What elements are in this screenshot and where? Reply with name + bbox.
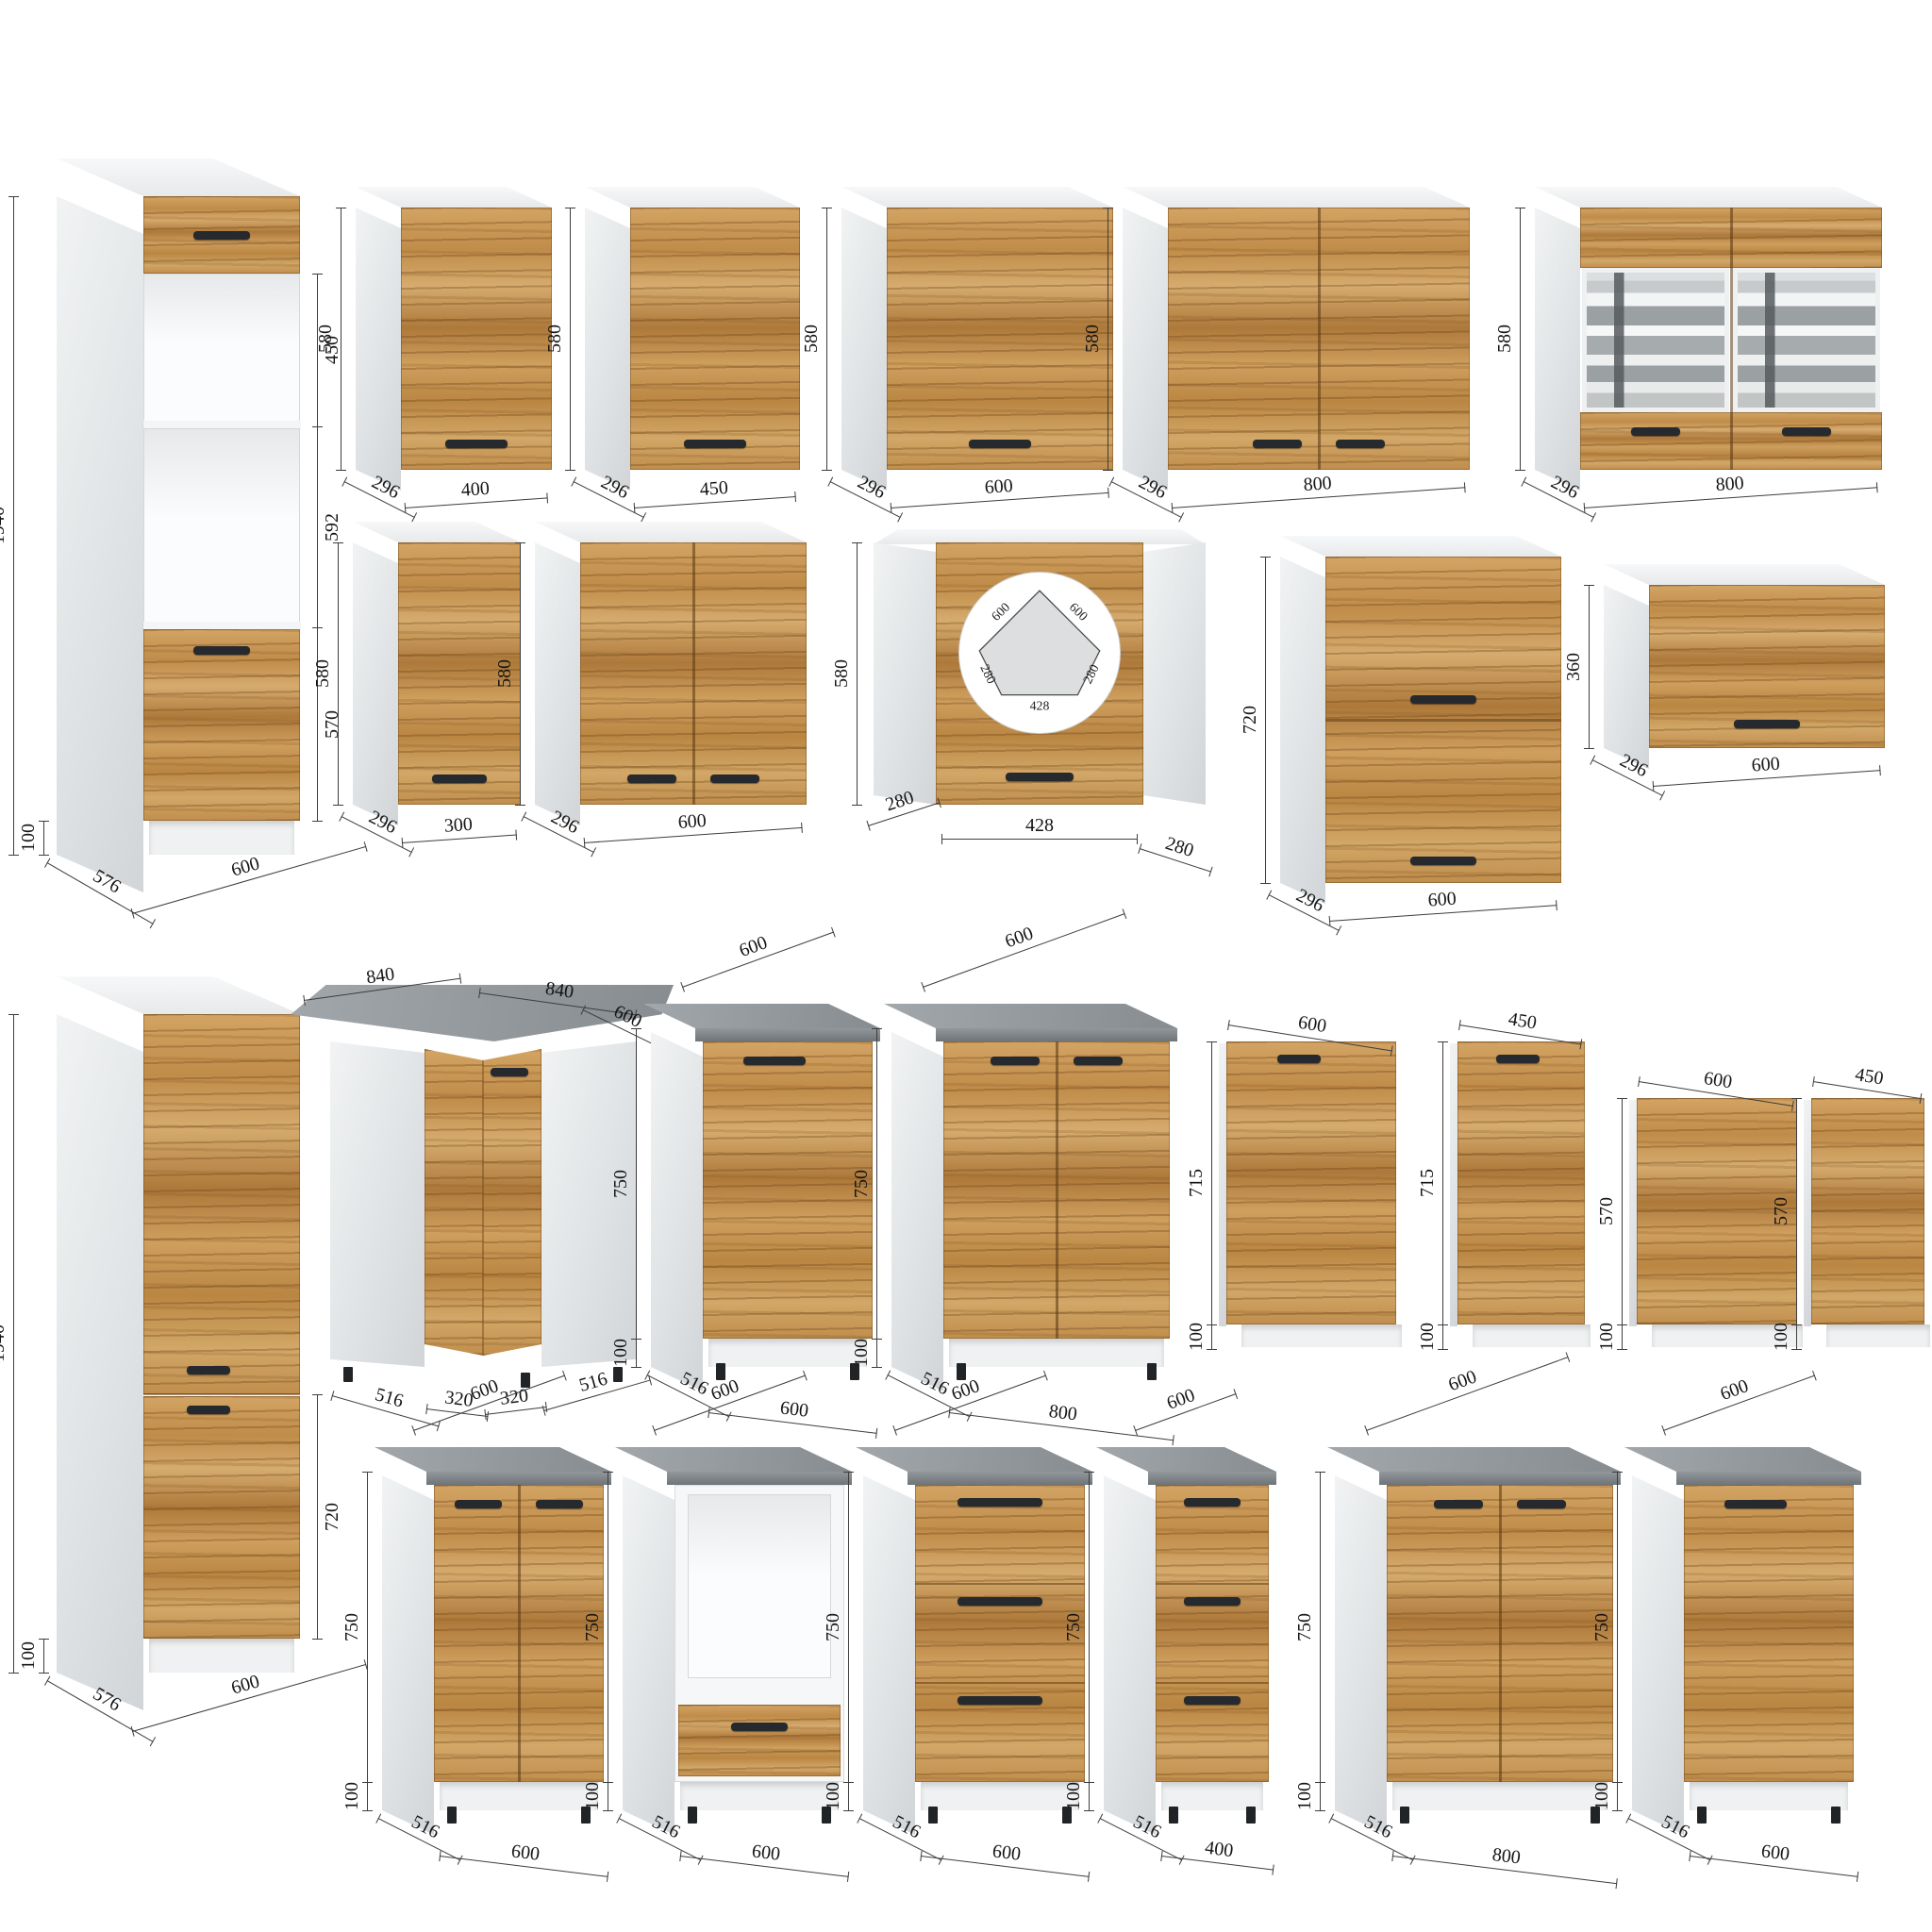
door-split: [1730, 208, 1733, 470]
cabinet-top-panel: [1123, 187, 1470, 208]
dimension: 400: [405, 497, 548, 508]
dimension-tick: [652, 1425, 657, 1436]
cabinet-foot: [1831, 1807, 1840, 1824]
dimension-line: [857, 542, 858, 805]
dimension-tick: [847, 1872, 849, 1882]
dimension-tick: [631, 1028, 641, 1029]
dimension-label: 400: [1204, 1839, 1234, 1861]
dimension: 600: [413, 1375, 565, 1430]
dimension-tick: [1584, 748, 1594, 749]
dimension-label: 580: [313, 659, 332, 688]
cabinet-side-panel: [1535, 208, 1580, 491]
door-handle: [1184, 1597, 1241, 1606]
dimension-label: 516: [1361, 1812, 1395, 1841]
plinth: [680, 1782, 839, 1810]
cabinet-side-panel: [1143, 542, 1206, 805]
dimension-label: 450: [699, 478, 728, 499]
dimension-tick: [603, 1782, 613, 1783]
dimension: 516: [859, 1818, 941, 1859]
dimension-line: [13, 196, 14, 855]
door-handle: [731, 1723, 788, 1731]
dimension-label: 800: [1048, 1402, 1078, 1424]
flap-split: [1325, 719, 1561, 722]
appliance-front-panel: [1457, 1041, 1585, 1324]
countertop-edge: [695, 1028, 880, 1041]
dimension-label: 450: [1854, 1065, 1885, 1088]
dimension: 600: [1690, 1856, 1858, 1876]
dimension-tick: [1207, 1349, 1217, 1350]
countertop-top: [1327, 1447, 1621, 1472]
dimension-label: 100: [342, 1782, 361, 1810]
dimension: 600: [1653, 770, 1880, 786]
dimension-tick: [333, 805, 343, 806]
dimension: 600: [440, 1856, 608, 1876]
plinth: [149, 1639, 294, 1673]
dimension-line: [1320, 1472, 1321, 1782]
dimension-label: 600: [1760, 1841, 1790, 1864]
dimension-line: [1520, 208, 1521, 470]
door-handle: [958, 1597, 1042, 1606]
cabinet-top-panel: [841, 187, 1113, 208]
dimension-line: [1089, 1472, 1090, 1782]
dimension-tick: [794, 491, 796, 502]
cabinet-top-panel: [57, 158, 300, 196]
dimension-line: [1442, 1324, 1443, 1349]
door-split: [143, 1393, 300, 1395]
dimension-tick: [515, 805, 525, 806]
dimension: 450: [634, 496, 796, 508]
door-handle: [536, 1500, 583, 1508]
dimension-label: 100: [1064, 1782, 1083, 1810]
dimension-tick: [1615, 1878, 1617, 1889]
cabinet-side-panel: [1335, 1475, 1387, 1835]
dimension-label: 580: [1495, 325, 1514, 353]
appliance-front-panel: [1226, 1041, 1396, 1324]
cabinet-side-panel: [1629, 1100, 1637, 1326]
dimension: 600: [891, 492, 1108, 508]
cabinet-front: [1684, 1485, 1854, 1782]
dimension-tick: [362, 1472, 373, 1473]
dimension: 600: [682, 932, 834, 987]
door-handle: [958, 1696, 1042, 1705]
dimension-line: [43, 1639, 44, 1673]
dimension-tick: [1612, 1782, 1623, 1783]
dimension: 280: [1140, 848, 1211, 872]
plinth: [921, 1782, 1079, 1810]
door-split: [518, 1485, 521, 1782]
dimension-label: 100: [19, 1641, 38, 1670]
dimension-tick: [941, 834, 942, 844]
dimension-tick: [1108, 488, 1109, 498]
cabinet-foot: [613, 1367, 623, 1382]
dimension-tick: [312, 1639, 323, 1640]
open-niche: [143, 428, 300, 627]
svg-text:600: 600: [989, 599, 1012, 623]
dimension-label: 516: [373, 1385, 405, 1410]
dimension-tick: [39, 855, 49, 856]
glass-door: [1582, 268, 1729, 412]
dimension-label: 570: [323, 710, 341, 739]
dimension-line: [1617, 1782, 1618, 1810]
dimension-line: [608, 1472, 608, 1782]
dimension: 600: [1366, 1357, 1568, 1430]
cabinet-side-panel: [57, 196, 143, 892]
cabinet-top-panel: [57, 976, 300, 1014]
oven-niche: [688, 1494, 831, 1678]
dimension-line: [1211, 1324, 1212, 1349]
dimension-label: 100: [1772, 1323, 1790, 1351]
cabinet-door: [143, 1014, 300, 1394]
cabinet-foot: [1400, 1807, 1409, 1824]
dimension-line: [367, 1472, 368, 1782]
cabinet-side-panel: [330, 1041, 425, 1367]
dimension-line: [1442, 1041, 1443, 1324]
dimension-label: 100: [1597, 1323, 1616, 1351]
dimension-tick: [1438, 1324, 1448, 1325]
dimension: 600: [1329, 905, 1557, 921]
dimension-tick: [843, 1810, 854, 1811]
dimension-tick: [875, 1428, 877, 1439]
dimension-tick: [1617, 1324, 1627, 1325]
dimension: 600: [1663, 1375, 1815, 1430]
dimension-label: 516: [918, 1369, 952, 1398]
dimension-tick: [1791, 1349, 1802, 1350]
dimension-label: 720: [1241, 706, 1259, 734]
drawer-split: [915, 1682, 1085, 1684]
cabinet-foot: [1147, 1363, 1157, 1380]
countertop-top: [375, 1447, 611, 1472]
dimension-tick: [364, 841, 368, 852]
door-handle: [991, 1057, 1040, 1065]
dimension: 280: [868, 802, 940, 825]
cabinet-top-panel: [1535, 187, 1882, 208]
dimension-tick: [801, 823, 803, 833]
dimension-label: 100: [583, 1782, 602, 1810]
cabinet-foot: [447, 1807, 457, 1824]
dimension-tick: [150, 919, 156, 928]
cabinet-side-panel: [1219, 1043, 1226, 1326]
dimension-label: 400: [460, 479, 490, 500]
dimension-label: 100: [611, 1339, 630, 1367]
dimension: 600: [708, 1412, 877, 1433]
cabinet-foot: [716, 1363, 725, 1380]
dimension-line: [848, 1782, 849, 1810]
dimension-tick: [1612, 1810, 1623, 1811]
dimension-tick: [39, 821, 49, 822]
dimension-tick: [515, 830, 517, 841]
dimension-tick: [565, 208, 575, 208]
dimension-label: 600: [229, 1672, 261, 1697]
cabinet-side-panel: [1104, 1475, 1156, 1835]
cabinet-side-panel: [874, 542, 936, 805]
dimension-tick: [872, 1028, 882, 1029]
dimension: 516: [1628, 1818, 1710, 1859]
dimension-tick: [1364, 1425, 1369, 1436]
cabinet-top-panel: [356, 187, 552, 208]
dimension-tick: [39, 1639, 49, 1640]
dimension-tick: [1133, 1425, 1138, 1436]
dimension-line: [1320, 1782, 1321, 1810]
dimension-tick: [680, 982, 685, 992]
door-handle: [1631, 427, 1680, 436]
dimension-tick: [843, 1472, 854, 1473]
dimension-tick: [8, 855, 19, 856]
dimension-label: 750: [342, 1613, 361, 1641]
dimension-tick: [1315, 1810, 1325, 1811]
cabinet-foot: [1246, 1807, 1256, 1824]
dimension: 800: [1392, 1856, 1617, 1883]
door-handle: [958, 1498, 1042, 1507]
dimension-label: 100: [1418, 1323, 1437, 1351]
dimension-label: 800: [1715, 474, 1744, 494]
dimension-line: [1265, 557, 1266, 883]
dimension-tick: [1661, 1425, 1666, 1436]
dimension-label: 750: [1295, 1613, 1314, 1641]
dimension-tick: [1178, 512, 1184, 522]
dimension-label: 580: [316, 325, 335, 353]
corner-plan-diagram: 600600280280428: [959, 573, 1120, 733]
door-handle: [491, 1068, 528, 1076]
dimension: 600: [1135, 1393, 1236, 1430]
plinth: [1826, 1324, 1930, 1347]
cabinet-foot: [688, 1807, 697, 1824]
corner-door: [483, 1049, 541, 1356]
door-handle: [1006, 773, 1074, 781]
dimension-tick: [603, 1810, 613, 1811]
dimension-tick: [641, 512, 646, 522]
door-handle: [193, 231, 250, 240]
door-split: [1318, 208, 1321, 470]
dimension-line: [1589, 585, 1590, 748]
dimension-label: 516: [577, 1370, 609, 1395]
dimension-tick: [1617, 1349, 1627, 1350]
door-split: [1056, 1041, 1058, 1339]
dimension-label: 1940: [0, 507, 8, 544]
door-handle: [1410, 695, 1476, 704]
cabinet-front: [887, 208, 1113, 470]
dimension-line: [608, 1782, 608, 1810]
dimension-tick: [1791, 1098, 1802, 1099]
dimension: 516: [1331, 1818, 1413, 1859]
drawer-front-stack: [915, 1485, 1085, 1782]
dimension-tick: [1208, 867, 1212, 877]
dimension-label: 580: [1083, 325, 1102, 353]
dimension-label: 720: [323, 1503, 341, 1531]
dimension-label: 600: [677, 811, 707, 832]
dimension: 516: [378, 1818, 460, 1859]
cabinet-side-panel: [57, 1014, 143, 1710]
plinth: [1392, 1782, 1607, 1810]
countertop-top: [884, 1004, 1177, 1028]
dimension-label: 600: [779, 1398, 809, 1421]
dimension-label: 750: [1064, 1613, 1083, 1641]
shelf: [143, 421, 300, 428]
dimension: 516: [619, 1818, 701, 1859]
dimension-tick: [411, 1425, 416, 1436]
dimension-tick: [150, 1737, 156, 1746]
cabinet-side-panel: [1280, 557, 1325, 904]
dimension-label: 516: [890, 1812, 924, 1841]
dimension-tick: [1438, 1349, 1448, 1350]
cabinet-side-panel: [382, 1475, 434, 1835]
countertop-top: [1624, 1447, 1861, 1472]
cabinet-front: [630, 208, 800, 470]
cabinet-foot: [1697, 1807, 1707, 1824]
oven-drawer: [678, 1705, 841, 1776]
dimension-line: [520, 542, 521, 805]
dimension: 300: [402, 834, 517, 842]
dimension-tick: [1172, 1435, 1174, 1445]
dimension-label: 516: [1130, 1812, 1164, 1841]
dimension-label: 600: [1427, 890, 1457, 910]
dimension-tick: [459, 974, 462, 984]
dimension-line: [1108, 208, 1108, 470]
dimension-label: 428: [1025, 816, 1054, 835]
dimension-line: [636, 1028, 637, 1339]
cabinet-side-panel: [541, 1041, 636, 1367]
dimension-line: [1796, 1098, 1797, 1324]
dimension-label: 600: [751, 1841, 781, 1864]
cabinet-side-panel: [1123, 208, 1168, 491]
dimension-label: 840: [544, 979, 575, 1002]
dimension: 600: [132, 846, 366, 913]
dimension-label: 100: [852, 1339, 871, 1367]
dimension-tick: [897, 512, 903, 522]
dimension-tick: [1515, 208, 1525, 208]
door-handle: [1336, 440, 1385, 448]
dimension-tick: [1791, 1324, 1802, 1325]
dimension-tick: [591, 847, 596, 857]
dimension: 800: [949, 1412, 1174, 1440]
dimension-tick: [312, 1394, 323, 1395]
door-split: [1499, 1485, 1502, 1782]
dimension-line: [317, 627, 318, 821]
dimension-tick: [1137, 834, 1138, 844]
dimension-tick: [822, 470, 832, 471]
cabinet-side-panel: [623, 1475, 675, 1835]
dimension-tick: [333, 542, 343, 543]
door-handle: [187, 1366, 230, 1374]
dimension-tick: [39, 1673, 49, 1674]
dimension-tick: [1088, 1872, 1090, 1882]
cabinet-foot: [928, 1807, 938, 1824]
dimension-line: [848, 1472, 849, 1782]
plinth: [1241, 1324, 1402, 1347]
dimension-line: [317, 426, 318, 627]
dimension-tick: [312, 426, 323, 427]
dimension-label: 600: [991, 1841, 1022, 1864]
dimension-label: 750: [583, 1613, 602, 1641]
dimension: 600: [921, 1856, 1090, 1876]
dimension-line: [941, 839, 1138, 840]
dimension-tick: [921, 982, 925, 992]
countertop-top: [615, 1447, 852, 1472]
drawer-front-stack: [1156, 1485, 1269, 1782]
dimension-line: [317, 1394, 318, 1639]
cabinet-side-panel: [1804, 1100, 1811, 1326]
cabinet-side-panel: [535, 542, 580, 825]
dimension-label: 600: [1297, 1013, 1328, 1036]
dimension-label: 600: [1703, 1069, 1734, 1091]
dimension-label: 580: [802, 325, 821, 353]
svg-text:600: 600: [1067, 600, 1091, 624]
countertop-edge: [936, 1028, 1177, 1041]
dimension-label: 100: [1295, 1782, 1314, 1810]
dimension-tick: [1464, 482, 1466, 492]
dimension-label: 300: [443, 815, 473, 836]
dimension: 600: [132, 1664, 366, 1731]
dimension-line: [338, 542, 339, 805]
dimension-line: [1089, 1782, 1090, 1810]
dimension-tick: [852, 542, 862, 543]
dimension: 516: [543, 1379, 650, 1410]
cabinet-door: [143, 1396, 300, 1639]
shelf: [143, 622, 300, 629]
door-handle: [710, 774, 759, 783]
dimension-tick: [437, 1421, 441, 1431]
drawer-split: [1156, 1583, 1269, 1585]
dimension-tick: [1612, 1472, 1623, 1473]
dimension-label: 516: [649, 1812, 683, 1841]
cabinet-foot: [957, 1363, 966, 1380]
dimension-tick: [872, 1367, 882, 1368]
dimension-tick: [1336, 925, 1341, 935]
dimension-label: 600: [510, 1841, 541, 1864]
door-handle: [432, 774, 488, 783]
dimension-line: [826, 208, 827, 470]
cabinet-top-panel: [353, 522, 521, 542]
cabinet-side-panel: [1450, 1043, 1457, 1326]
countertop-top: [643, 1004, 880, 1028]
dimension-tick: [631, 1367, 641, 1368]
dimension: 320: [485, 1407, 547, 1414]
dimension-label: 100: [19, 824, 38, 852]
cabinet-side-panel: [841, 208, 887, 491]
door-handle: [743, 1057, 806, 1065]
cabinet-foot: [1169, 1807, 1178, 1824]
dimension-line: [485, 1407, 547, 1415]
dimension-tick: [1659, 791, 1665, 800]
dimension-line: [367, 1782, 368, 1810]
dimension-tick: [1103, 208, 1113, 208]
door-handle: [1496, 1055, 1540, 1063]
dimension-label: 516: [1658, 1812, 1692, 1841]
dimension-label: 840: [365, 964, 395, 987]
dimension-tick: [546, 492, 548, 503]
dimension-label: 100: [1187, 1323, 1206, 1351]
dimension-label: 570: [1597, 1197, 1616, 1225]
dimension-tick: [1260, 557, 1271, 558]
dimension-label: 516: [677, 1369, 711, 1398]
dimension-line: [1796, 1324, 1797, 1349]
dimension-tick: [1556, 900, 1557, 910]
dimension-tick: [8, 1673, 19, 1674]
cabinet-front: [401, 208, 552, 470]
dimension-label: 580: [832, 659, 851, 688]
dimension-label: 592: [323, 513, 341, 541]
dimension-line: [13, 1014, 14, 1673]
countertop-edge: [1379, 1472, 1621, 1485]
dimension-label: 750: [1592, 1613, 1611, 1641]
door-handle: [1517, 1500, 1566, 1508]
dimension-label: 450: [1507, 1009, 1539, 1032]
dimension-label: 715: [1418, 1169, 1437, 1197]
door-handle: [1410, 857, 1476, 865]
drawer-split: [915, 1583, 1085, 1585]
dimension-label: 570: [1772, 1197, 1790, 1225]
svg-text:428: 428: [1030, 698, 1050, 712]
dimension-tick: [1207, 1041, 1217, 1042]
